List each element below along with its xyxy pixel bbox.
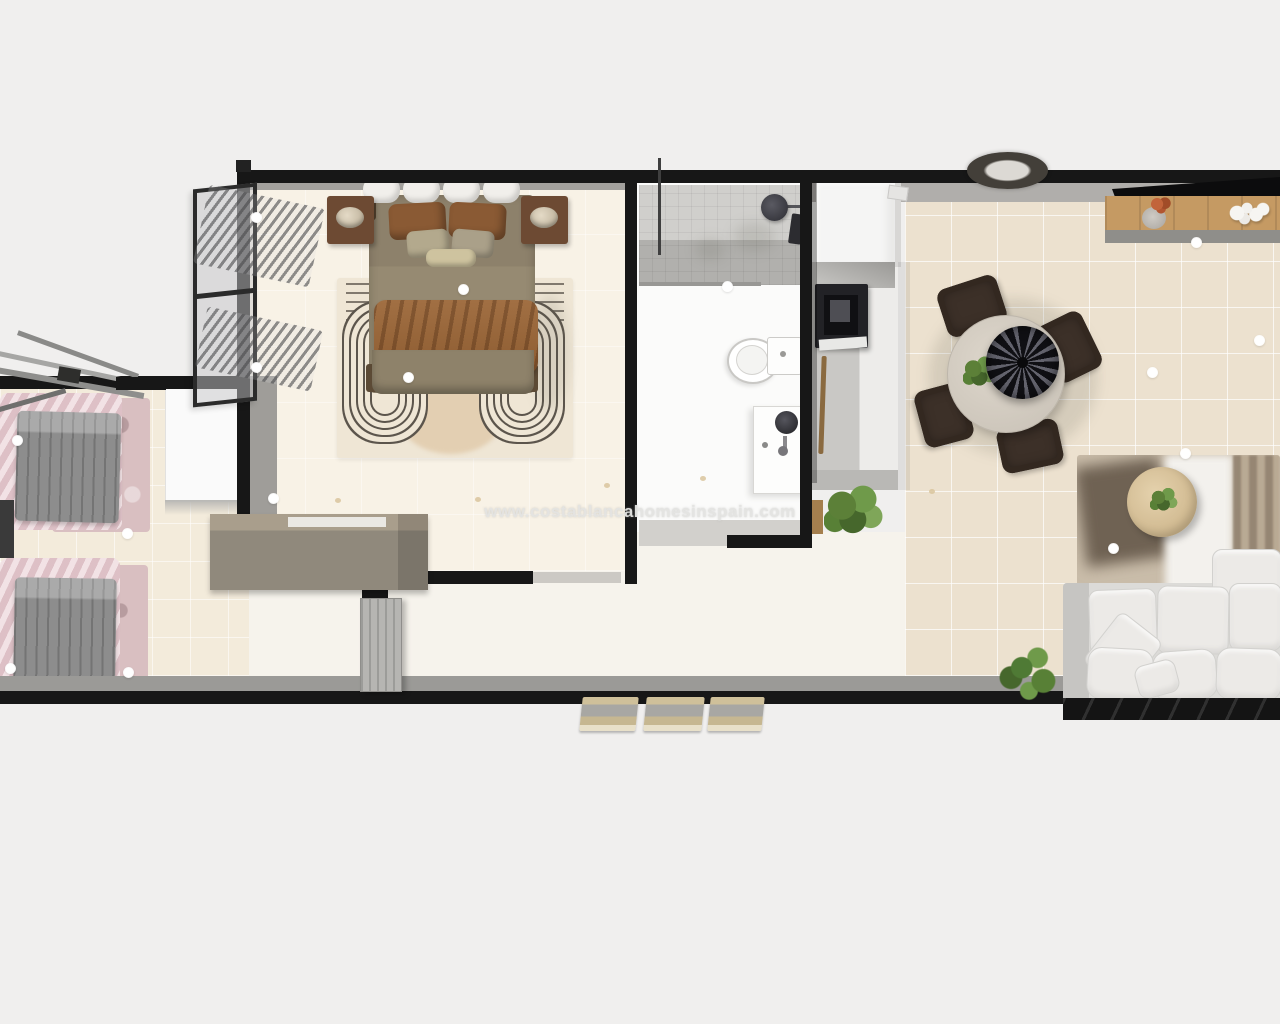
sofa-seat-pillow — [1215, 647, 1280, 701]
pendant-lamp — [986, 326, 1059, 399]
sofa-side-plant — [993, 638, 1065, 704]
annex-nightstand — [0, 500, 14, 558]
vanity-sink — [775, 411, 798, 434]
entry-step — [643, 697, 705, 731]
toilet-button — [780, 351, 786, 357]
shower-shadow — [695, 238, 725, 260]
ceiling-light-dot — [1254, 335, 1265, 346]
single-bed-top-duvet — [15, 411, 122, 524]
desk-top-accent — [288, 517, 386, 527]
floor-speck — [604, 483, 610, 488]
wall-wreath — [967, 152, 1048, 189]
wood-end-panel — [812, 500, 823, 534]
bathroom-kitchen-wall — [800, 183, 812, 548]
bedroom-rug-circle — [401, 386, 501, 454]
ceiling-light-dot — [123, 667, 134, 678]
ceiling-light-dot — [458, 284, 469, 295]
watermark-text: www.costablancahomesinspain.com — [484, 502, 796, 522]
sofa-bottom-shadow — [1063, 698, 1280, 720]
ceiling-light-dot — [251, 212, 262, 223]
sofa-back-cushion — [1156, 585, 1229, 654]
counter-floor-shadow — [898, 262, 910, 490]
interior-door-open — [360, 598, 402, 692]
top-wall — [237, 170, 1280, 183]
coral-decor — [1222, 197, 1272, 229]
desk-side-shade — [398, 514, 428, 590]
vase-flowers — [1148, 196, 1174, 214]
ceiling-light-dot — [122, 528, 133, 539]
floor-speck — [475, 497, 481, 502]
desk-sideboard — [210, 514, 428, 590]
vanity-drain — [762, 442, 768, 448]
sofa-left-arm — [1063, 583, 1089, 703]
pillow-lumbar — [426, 249, 476, 267]
ceiling-light-dot — [1180, 448, 1191, 459]
pendant-center — [1017, 357, 1028, 368]
entry-step — [707, 697, 765, 731]
wardrobe-shadow — [165, 500, 245, 515]
window-crossbar — [197, 288, 253, 299]
annex-wall-stub — [116, 377, 166, 390]
coffee-table-plant — [1150, 487, 1178, 513]
kitchen-plant — [824, 484, 884, 538]
ceiling-light-dot — [403, 372, 414, 383]
bathroom-bottom-wall — [727, 535, 812, 548]
ceiling-light-dot — [268, 493, 279, 504]
floor-speck — [929, 489, 935, 494]
single-bed-bottom-duvet — [13, 577, 117, 687]
ceiling-light-dot — [251, 362, 262, 373]
shower-glass-top-edge — [658, 158, 661, 255]
shower-glass-edge — [639, 282, 761, 286]
floor-speck — [335, 498, 341, 503]
wall-corner-post — [236, 160, 251, 172]
ceiling-light-dot — [1147, 367, 1158, 378]
kitchen-wall-shadow — [812, 183, 817, 483]
floorplan-render: www.costablancahomesinspain.com — [0, 0, 1280, 1024]
bed-foot-blanket — [372, 350, 534, 394]
ceiling-light-dot — [12, 435, 23, 446]
bedroom-door-threshold — [533, 572, 621, 583]
ceiling-light-dot — [5, 663, 16, 674]
ceiling-light-dot — [722, 281, 733, 292]
vanity-faucet-handle — [778, 446, 788, 456]
ceiling-light-dot — [1191, 237, 1202, 248]
ceiling-light-dot — [1108, 543, 1119, 554]
table-lamp-right — [530, 207, 558, 228]
shower-head — [761, 194, 788, 221]
entry-step — [579, 697, 639, 731]
floor-speck — [700, 476, 706, 481]
table-lamp-left — [336, 207, 364, 228]
cooktop-detail — [830, 300, 850, 322]
sofa-back-cushion — [1229, 583, 1280, 651]
wall-bracket — [887, 185, 909, 202]
shower-shadow — [733, 222, 775, 252]
toilet-seat — [736, 345, 768, 375]
bedroom-bathroom-wall — [625, 183, 637, 584]
